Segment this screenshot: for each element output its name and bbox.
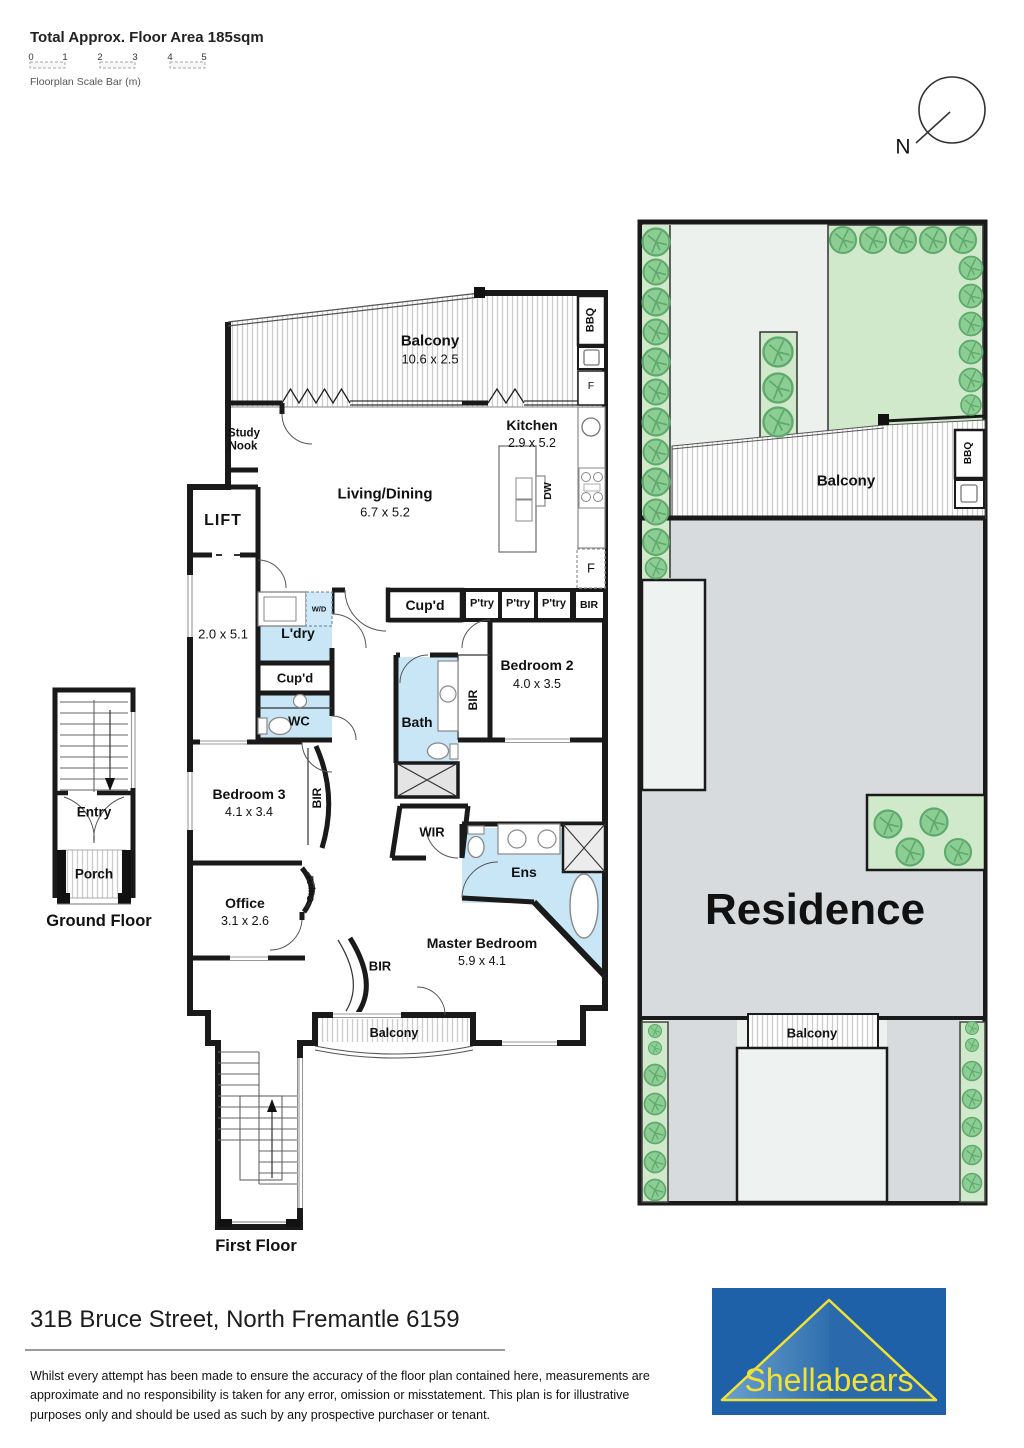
caption-first-floor: First Floor [215, 1238, 297, 1255]
room-label-lift: LIFT [204, 513, 242, 529]
sink-icon [584, 350, 599, 365]
property-address: 31B Bruce Street, North Fremantle 6159 [30, 1306, 460, 1334]
brand-name: Shellabears [745, 1362, 914, 1398]
floorplan-drawing [0, 0, 1024, 1270]
room-label-wir: WIR [419, 826, 444, 839]
compass-n-label: N [895, 137, 910, 158]
room-label-bedroom2: Bedroom 2 [500, 658, 573, 672]
room-label-living-dining: Living/Dining [338, 487, 433, 502]
label-fridge-kitchen: F [587, 562, 595, 575]
caption-ground-floor: Ground Floor [46, 913, 151, 930]
site-label-balcony-front: Balcony [787, 1027, 838, 1040]
label-bbq: BBQ [586, 308, 597, 332]
label-pantry-2: P'try [506, 599, 530, 610]
scale-bar [30, 62, 205, 68]
room-label-study-nook: Study [228, 428, 260, 440]
toilet-icon [468, 837, 484, 858]
scale-tick: 3 [132, 52, 137, 63]
site-label-residence: Residence [705, 888, 925, 932]
balcony-rear-area [228, 293, 605, 407]
room-dims-corridor: 2.0 x 5.1 [198, 628, 248, 641]
room-label-balcony-front: Balcony [370, 1027, 419, 1040]
label-cupboard-laundry: Cup'd [277, 672, 313, 685]
label-bir-master: BIR [369, 960, 391, 973]
bathtub-icon [570, 874, 598, 938]
basin-icon [538, 830, 556, 848]
trough-icon [264, 597, 296, 621]
label-bir-bedroom3: BIR [311, 788, 323, 809]
label-bir-kitchen: BIR [580, 600, 598, 611]
footer-divider [25, 1349, 505, 1351]
floor-area-label: Total Approx. Floor Area 185sqm [30, 29, 264, 46]
basin-icon [294, 695, 307, 708]
room-dims-living-dining: 6.7 x 5.2 [360, 506, 410, 519]
floorplan-page: Total Approx. Floor Area 185sqm 0 1 2 3 … [0, 0, 1024, 1448]
basin-icon [508, 830, 526, 848]
label-pantry-3: P'try [542, 599, 566, 610]
room-label-ens: Ens [511, 865, 537, 879]
room-label-office: Office [225, 896, 265, 910]
room-label-balcony-rear: Balcony [401, 334, 459, 349]
label-fridge-balcony: F [588, 381, 594, 392]
room-label-entry: Entry [77, 805, 112, 819]
room-label-bedroom3: Bedroom 3 [212, 787, 285, 801]
site-label-bbq: BBQ [964, 442, 974, 464]
room-dims-bedroom2: 4.0 x 3.5 [513, 678, 561, 691]
room-label-wc: WC [288, 715, 310, 728]
basin-icon [440, 686, 456, 702]
room-label-kitchen: Kitchen [506, 418, 557, 432]
scale-caption: Floorplan Scale Bar (m) [30, 76, 141, 88]
shower-icon [396, 763, 458, 797]
disclaimer-text: Whilst every attempt has been made to en… [30, 1367, 682, 1425]
room-dims-bedroom3: 4.1 x 3.4 [225, 806, 273, 819]
label-pantry-1: P'try [470, 599, 494, 610]
north-compass-icon [916, 77, 985, 143]
room-label-laundry: L'dry [281, 626, 315, 640]
island-bench [499, 446, 545, 552]
scale-tick: 2 [97, 52, 102, 63]
room-label-master-bedroom: Master Bedroom [427, 936, 537, 950]
stairs-first-floor [218, 1052, 304, 1227]
toilet-icon [428, 743, 449, 759]
label-cupboard-hall: Cup'd [405, 598, 444, 612]
room-dims-kitchen: 2.9 x 5.2 [508, 437, 556, 450]
label-dishwasher: DW [543, 482, 554, 500]
site-plan [640, 222, 985, 1203]
room-label-study-nook: Nook [229, 441, 258, 453]
agency-logo: Shellabears [712, 1288, 946, 1415]
scale-tick: 5 [201, 52, 206, 63]
room-dims-master-bedroom: 5.9 x 4.1 [458, 955, 506, 968]
label-bir-bedroom2: BIR [467, 690, 479, 711]
stairs-up-arrow-icon [267, 1099, 277, 1112]
room-dims-balcony-rear: 10.6 x 2.5 [401, 353, 458, 366]
site-label-balcony-rear: Balcony [817, 474, 875, 489]
room-label-porch: Porch [75, 867, 113, 881]
scale-tick: 4 [167, 52, 172, 63]
label-washer-dryer: W/D [312, 605, 327, 613]
scale-tick: 1 [62, 52, 67, 63]
kitchen-bench [578, 407, 605, 548]
scale-tick: 0 [28, 52, 33, 63]
label-cupboard-office: Cup'd [306, 876, 316, 903]
sink-icon [582, 418, 600, 436]
room-dims-office: 3.1 x 2.6 [221, 915, 269, 928]
room-label-bath: Bath [401, 715, 432, 729]
